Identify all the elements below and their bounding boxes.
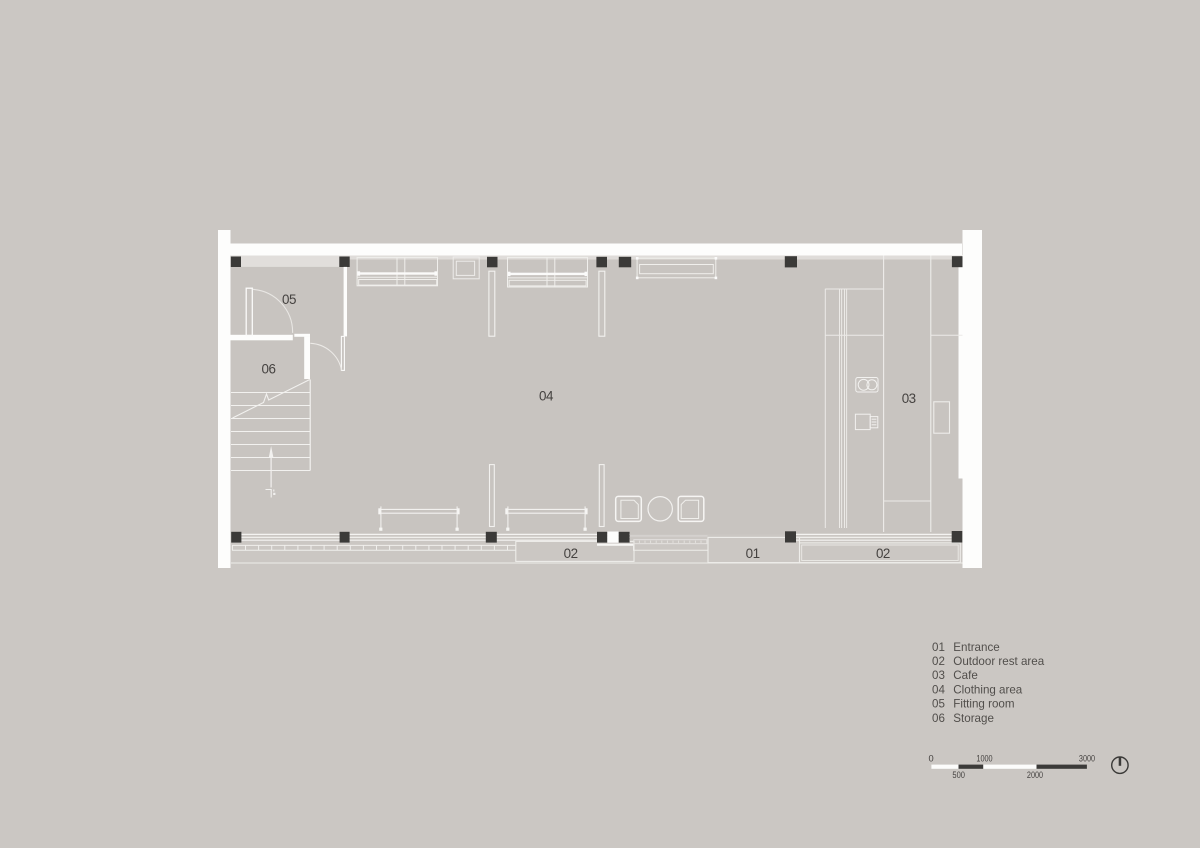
svg-text:500: 500	[952, 770, 965, 780]
svg-text:06: 06	[262, 362, 276, 377]
svg-text:2000: 2000	[1027, 770, 1043, 780]
svg-text:Entrance: Entrance	[953, 641, 999, 654]
svg-text:Fitting room: Fitting room	[953, 698, 1014, 711]
svg-text:01: 01	[746, 546, 760, 561]
svg-text:03: 03	[902, 391, 916, 406]
svg-text:0: 0	[929, 754, 934, 764]
svg-text:Clothing area: Clothing area	[953, 683, 1023, 696]
svg-text:01: 01	[932, 641, 945, 654]
svg-text:03: 03	[932, 669, 945, 682]
svg-text:04: 04	[932, 683, 945, 696]
svg-text:05: 05	[932, 698, 945, 711]
svg-text:05: 05	[282, 292, 296, 307]
svg-text:06: 06	[932, 712, 945, 725]
svg-text:02: 02	[932, 655, 945, 668]
svg-text:02: 02	[564, 546, 578, 561]
svg-text:Storage: Storage	[953, 712, 994, 725]
svg-text:Cafe: Cafe	[953, 669, 978, 682]
svg-text:3000: 3000	[1079, 754, 1095, 764]
svg-text:1000: 1000	[976, 754, 992, 764]
svg-text:02: 02	[876, 546, 890, 561]
svg-text:04: 04	[539, 389, 554, 404]
svg-text:Outdoor rest area: Outdoor rest area	[953, 655, 1044, 668]
